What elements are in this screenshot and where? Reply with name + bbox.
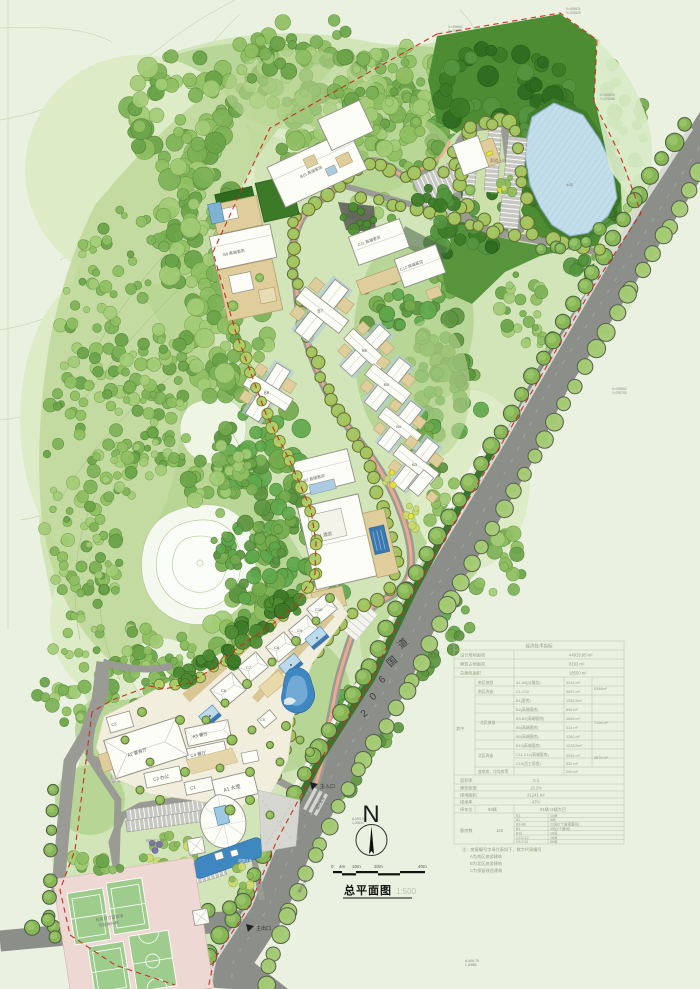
svg-text:B3-B8: B3-B8	[516, 823, 526, 827]
svg-text:10m: 10m	[352, 864, 361, 869]
svg-text:4m: 4m	[339, 864, 346, 869]
svg-text:其中: 其中	[456, 725, 464, 732]
svg-text:C6-C10: C6-C10	[516, 840, 528, 844]
svg-text:Y=376529: Y=376529	[566, 11, 581, 15]
svg-text:B7: B7	[317, 308, 323, 313]
svg-text:索道上站: 索道上站	[490, 157, 506, 163]
svg-text:B3: B3	[412, 462, 418, 467]
svg-text:容积率: 容积率	[460, 777, 473, 784]
svg-text:B9: B9	[516, 827, 520, 831]
svg-text:20m: 20m	[374, 864, 383, 869]
svg-text:18间: 18间	[550, 830, 558, 835]
svg-text:停车位: 停车位	[460, 806, 473, 813]
svg-text:N: N	[362, 801, 379, 828]
svg-text:1355.5m²: 1355.5m²	[566, 699, 583, 703]
svg-text:B2: B2	[516, 818, 520, 822]
svg-text:设计用地面积: 设计用地面积	[460, 652, 485, 659]
svg-text:22间(2个景观套间): 22间(2个景观套间)	[550, 822, 579, 827]
svg-text:B9(高端客房): B9(高端客房)	[516, 734, 539, 739]
svg-text:经济技术指标: 经济技术指标	[526, 643, 553, 650]
svg-text:2544 m²: 2544 m²	[566, 754, 581, 758]
svg-text:C11-C12(高端客房): C11-C12(高端客房)	[516, 752, 549, 757]
svg-text:主出口: 主出口	[256, 925, 271, 932]
svg-text:B10(高端客房): B10(高端客房)	[516, 743, 541, 748]
svg-text:南区改造: 南区改造	[478, 689, 493, 694]
svg-text:B10: B10	[516, 831, 522, 835]
svg-text:56间: 56间	[550, 839, 558, 844]
svg-text:146: 146	[496, 828, 504, 833]
svg-text:8间: 8间	[550, 817, 556, 822]
svg-text:18.2%: 18.2%	[530, 786, 542, 791]
svg-text:1280 m²: 1280 m²	[566, 735, 581, 739]
svg-text:4间(2个套间): 4间(2个套间)	[550, 826, 570, 831]
svg-text:8193 m²: 8193 m²	[569, 662, 585, 667]
svg-text:总平面图: 总平面图	[344, 883, 392, 897]
svg-text:200 m²: 200 m²	[566, 770, 579, 774]
svg-text:建筑密度: 建筑密度	[460, 785, 478, 792]
svg-text:B8(高端客房): B8(高端客房)	[516, 725, 539, 730]
svg-text:Y=376396: Y=376396	[448, 29, 463, 33]
svg-text:1665 m²: 1665 m²	[566, 717, 581, 721]
svg-text:北区改造: 北区改造	[478, 753, 493, 758]
svg-text:28间: 28间	[550, 835, 558, 840]
svg-text:C为保留改造建筑: C为保留改造建筑	[470, 867, 503, 874]
svg-text:44919.95 m²: 44919.95 m²	[569, 653, 593, 658]
svg-text:B1: B1	[516, 814, 520, 818]
svg-text:客房数: 客房数	[460, 827, 473, 834]
svg-text:C13(员工宿舍): C13(员工宿舍)	[516, 761, 541, 766]
svg-text:花园泳池: 花园泳池	[238, 858, 252, 863]
svg-text:18550 m²: 18550 m²	[569, 671, 587, 676]
svg-text:B为北区旅游建筑: B为北区旅游建筑	[470, 860, 503, 867]
svg-text:0.4: 0.4	[533, 778, 539, 783]
svg-text:2876 m²: 2876 m²	[594, 756, 609, 760]
svg-text:C5: C5	[260, 718, 265, 722]
svg-text:21241 m²: 21241 m²	[527, 793, 545, 798]
svg-text:B3-B7(高端客房): B3-B7(高端客房)	[516, 716, 545, 721]
svg-text:1:500: 1:500	[396, 887, 417, 896]
svg-text:Y=376700: Y=376700	[612, 391, 627, 395]
svg-text:变电房、垃圾房等: 变电房、垃圾房等	[478, 769, 509, 774]
svg-text:停车位70辆: 停车位70辆	[146, 838, 164, 843]
svg-text:47%: 47%	[532, 800, 541, 805]
svg-text:332 m²: 332 m²	[566, 762, 579, 766]
svg-text:1-00580: 1-00580	[465, 963, 477, 967]
svg-text:北区旅游: 北区旅游	[480, 720, 495, 725]
svg-text:C6: C6	[221, 688, 227, 693]
svg-text:C9: C9	[297, 628, 303, 633]
svg-text:南区旅游: 南区旅游	[478, 680, 493, 685]
svg-text:用地红线: 用地红线	[238, 917, 254, 923]
svg-text:C1-C10: C1-C10	[516, 690, 529, 694]
svg-text:8346m²: 8346m²	[594, 687, 608, 691]
svg-text:A为南区旅游建筑: A为南区旅游建筑	[470, 853, 503, 860]
svg-text:绿地面积: 绿地面积	[460, 792, 477, 799]
svg-text:主入口: 主入口	[320, 783, 335, 790]
svg-text:绿地率: 绿地率	[460, 799, 473, 806]
svg-text:C10: C10	[315, 607, 323, 612]
svg-text:Y=376588: Y=376588	[600, 97, 615, 101]
svg-text:B4: B4	[396, 425, 401, 429]
svg-text:1228.5m²: 1228.5m²	[566, 744, 583, 748]
svg-text:注：房屋编号字母代表如下，数字代表编号: 注：房屋编号字母代表如下，数字代表编号	[462, 846, 542, 853]
svg-text:7128 m²: 7128 m²	[594, 721, 609, 725]
svg-text:895 m²: 895 m²	[566, 708, 579, 712]
svg-text:5097 m²: 5097 m²	[566, 690, 581, 694]
svg-text:C8: C8	[274, 645, 280, 650]
svg-text:C11C12: C11C12	[516, 836, 529, 840]
svg-text:B1(客房): B1(客房)	[516, 698, 532, 703]
svg-text:10间: 10间	[550, 813, 558, 818]
svg-text:水库: 水库	[566, 182, 574, 187]
svg-text:建筑占地面积: 建筑占地面积	[460, 661, 485, 668]
svg-text:93辆: 93辆	[488, 806, 497, 813]
svg-text:313 m²: 313 m²	[566, 726, 579, 730]
svg-text:A1-A6(公服务): A1-A6(公服务)	[516, 680, 541, 685]
svg-text:C7: C7	[246, 665, 252, 670]
svg-text:3244 m²: 3244 m²	[566, 681, 581, 685]
svg-text:B2(高端客房): B2(高端客房)	[516, 707, 539, 712]
svg-text:B5: B5	[384, 382, 390, 387]
svg-text:91辆+2辆大巴: 91辆+2辆大巴	[540, 806, 566, 813]
svg-text:40m: 40m	[418, 864, 427, 869]
svg-text:总建筑面积: 总建筑面积	[460, 670, 481, 677]
